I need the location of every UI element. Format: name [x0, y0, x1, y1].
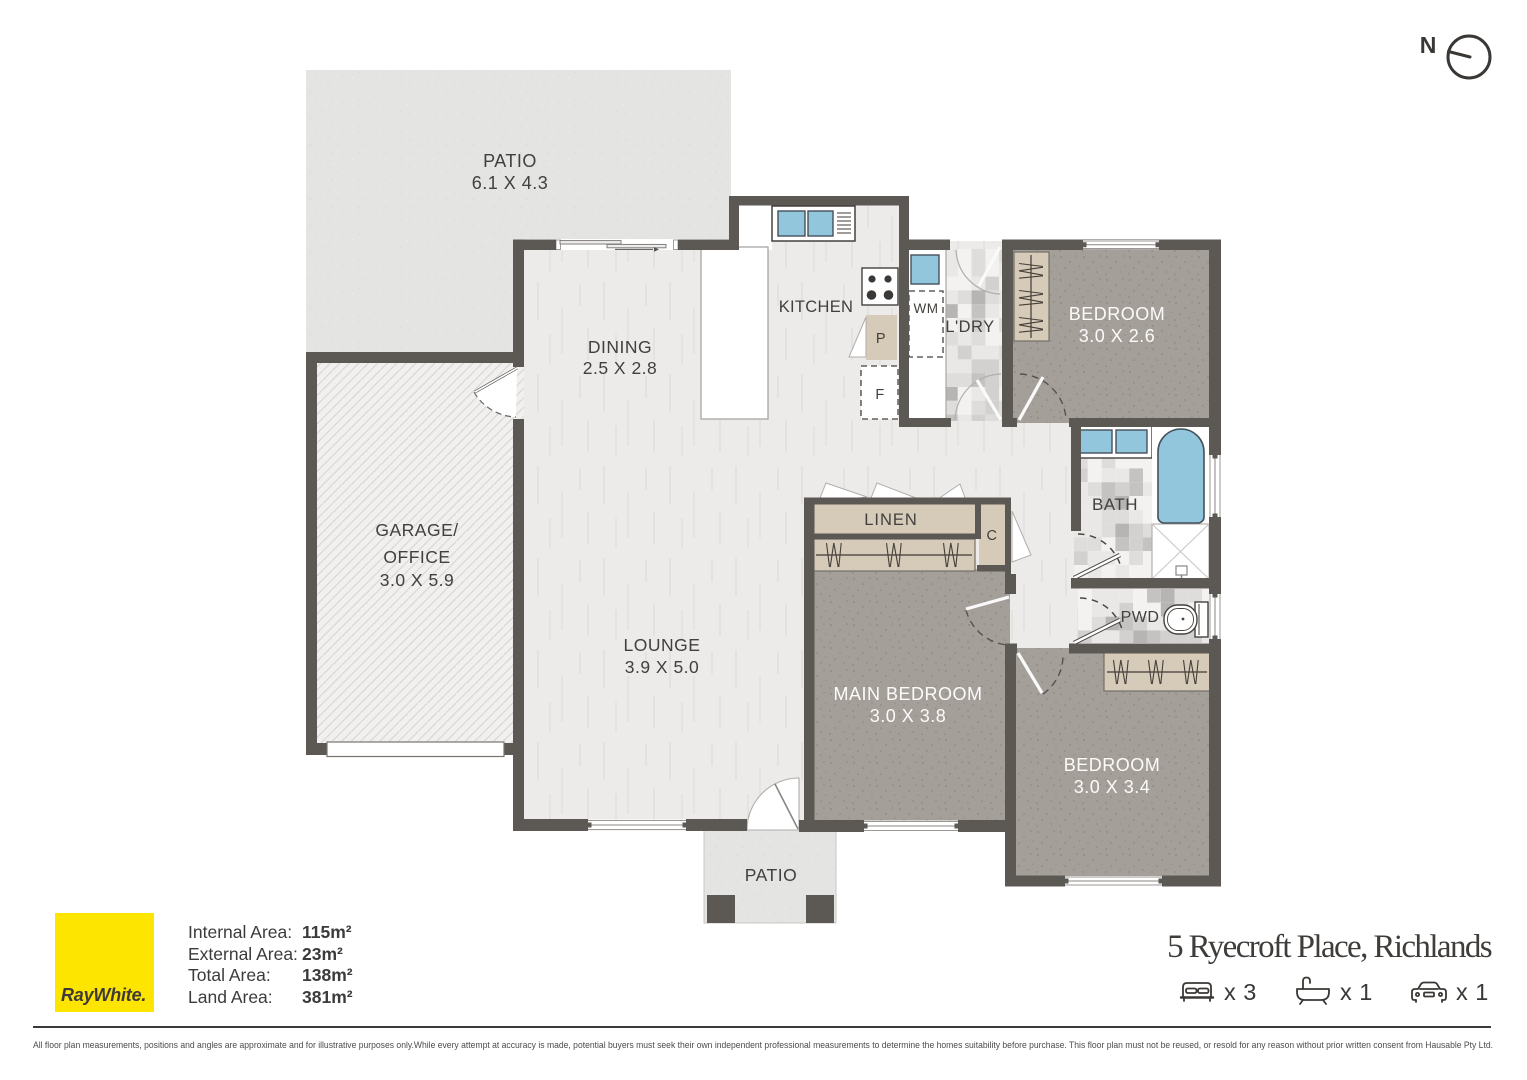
svg-text:3.9 X 5.0: 3.9 X 5.0	[625, 657, 700, 677]
svg-text:PWD: PWD	[1121, 609, 1160, 626]
svg-text:WM: WM	[914, 301, 939, 316]
svg-text:LOUNGE: LOUNGE	[624, 635, 701, 655]
svg-text:3.0 X 3.8: 3.0 X 3.8	[870, 706, 947, 726]
svg-text:138m²: 138m²	[302, 965, 353, 985]
svg-text:2.5 X 2.8: 2.5 X 2.8	[583, 358, 658, 378]
svg-text:BEDROOM: BEDROOM	[1064, 755, 1161, 775]
svg-text:PATIO: PATIO	[483, 151, 537, 171]
svg-text:3.0 X 5.9: 3.0 X 5.9	[380, 570, 455, 590]
svg-text:BEDROOM: BEDROOM	[1069, 304, 1166, 324]
svg-text:x 1: x 1	[1340, 979, 1373, 1005]
svg-text:x 3: x 3	[1224, 979, 1257, 1005]
svg-text:F: F	[875, 387, 884, 403]
svg-text:BATH: BATH	[1092, 495, 1138, 514]
svg-text:DINING: DINING	[588, 337, 652, 357]
svg-text:3.0 X 2.6: 3.0 X 2.6	[1079, 326, 1156, 346]
svg-text:LINEN: LINEN	[864, 511, 918, 529]
svg-text:23m²: 23m²	[302, 944, 343, 964]
svg-text:OFFICE: OFFICE	[383, 547, 450, 567]
svg-text:RayWhite.: RayWhite.	[61, 985, 146, 1005]
svg-text:3.0 X 3.4: 3.0 X 3.4	[1074, 777, 1151, 797]
svg-text:External Area:: External Area:	[188, 944, 298, 964]
svg-text:115m²: 115m²	[302, 922, 352, 942]
svg-text:Total Area:: Total Area:	[188, 965, 271, 985]
svg-text:C: C	[987, 528, 998, 544]
svg-text:x 1: x 1	[1456, 979, 1489, 1005]
svg-text:P: P	[876, 331, 886, 347]
svg-text:GARAGE/: GARAGE/	[375, 520, 458, 540]
svg-text:MAIN BEDROOM: MAIN BEDROOM	[833, 684, 982, 704]
svg-text:6.1 X 4.3: 6.1 X 4.3	[472, 173, 549, 193]
svg-text:5 Ryecroft Place, Richlands: 5 Ryecroft Place, Richlands	[1167, 929, 1492, 965]
svg-text:L'DRY: L'DRY	[945, 318, 994, 336]
svg-text:KITCHEN: KITCHEN	[779, 298, 854, 316]
svg-text:Internal Area:: Internal Area:	[188, 922, 292, 942]
svg-text:381m²: 381m²	[302, 987, 353, 1007]
svg-text:All floor plan measurements, p: All floor plan measurements, positions a…	[33, 1039, 1493, 1050]
svg-text:N: N	[1420, 32, 1437, 58]
svg-text:PATIO: PATIO	[745, 865, 797, 885]
svg-text:Land Area:: Land Area:	[188, 987, 273, 1007]
